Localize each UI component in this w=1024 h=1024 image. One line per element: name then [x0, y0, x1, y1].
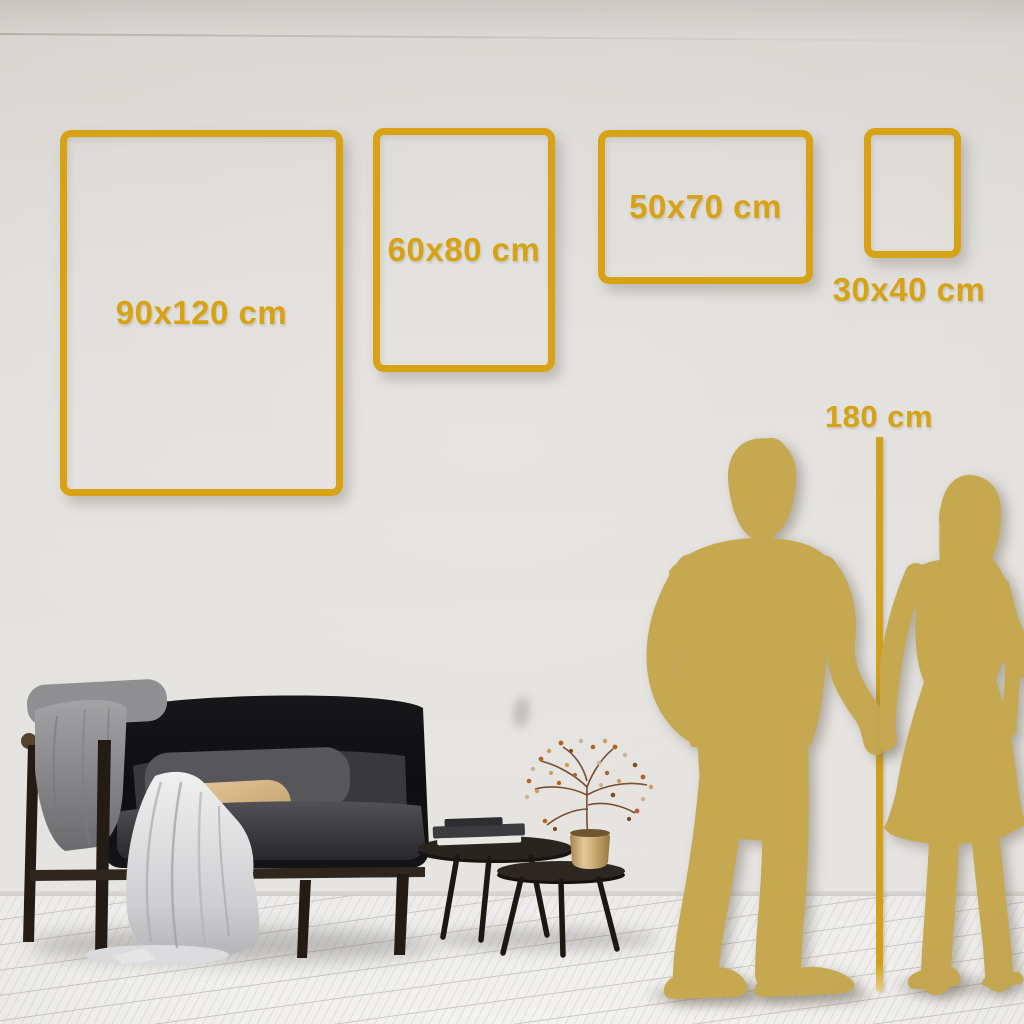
height-reference-label: 180 cm [796, 399, 962, 435]
plant-branches [535, 747, 647, 837]
size-label-50x70: 50x70 cm [629, 188, 782, 226]
size-frame-90x120: 90x120 cm [60, 130, 343, 496]
sofa-illustration [5, 670, 445, 970]
ceiling-shade [0, 0, 1024, 36]
poster-size-guide-scene: 90x120 cm 60x80 cm 50x70 cm 30x40 cm 180… [0, 0, 1024, 1024]
size-label-90x120: 90x120 cm [116, 294, 287, 332]
size-label-60x80: 60x80 cm [388, 231, 541, 269]
man-silhouette-icon [645, 435, 890, 1005]
plant-berries [525, 739, 653, 831]
coffee-table-illustration [415, 725, 675, 960]
size-frame-60x80: 60x80 cm [373, 128, 555, 372]
size-frame-50x70: 50x70 cm [598, 130, 813, 284]
size-frame-30x40 [864, 128, 961, 258]
woman-silhouette-icon [880, 470, 1024, 995]
size-label-30x40: 30x40 cm [828, 271, 990, 309]
